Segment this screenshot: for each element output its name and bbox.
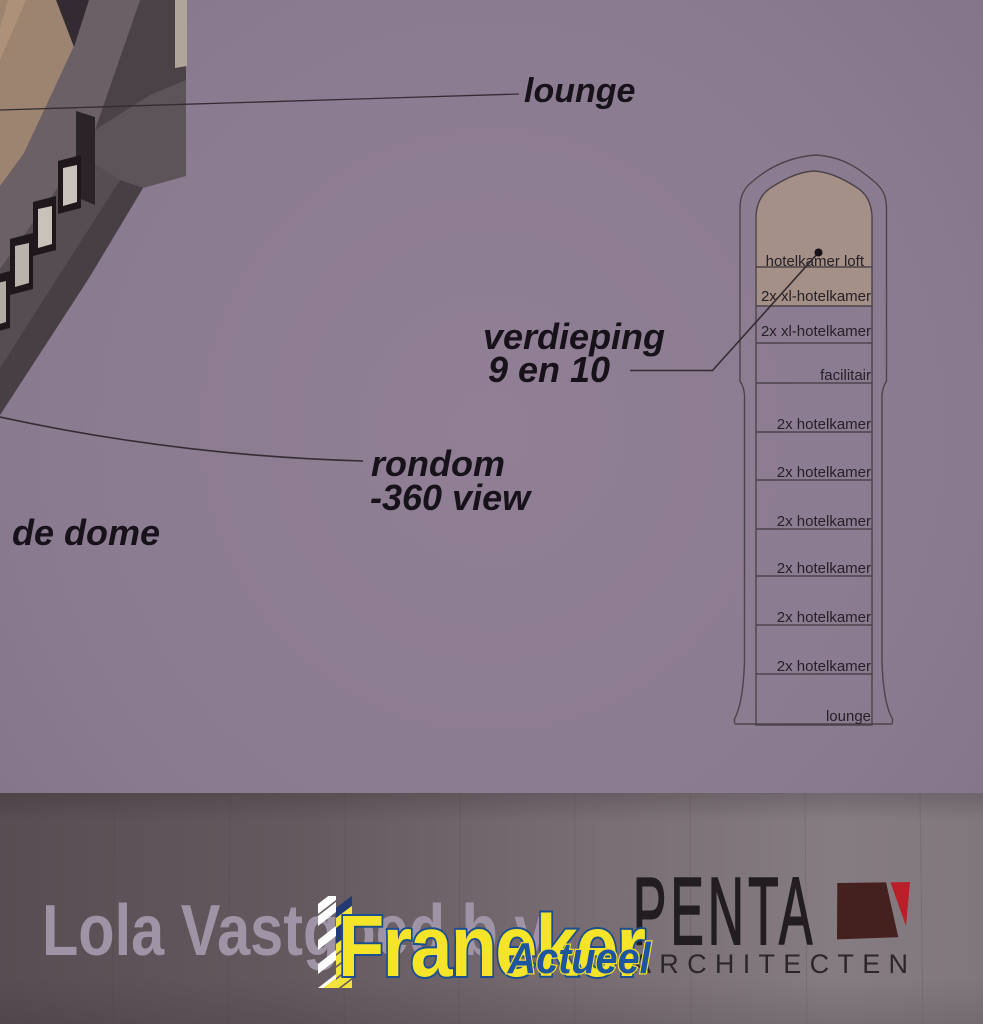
svg-text:Actueel: Actueel [507,933,652,982]
svg-text:2x hotelkamer: 2x hotelkamer [777,658,871,675]
svg-text:9 en 10: 9 en 10 [488,349,610,390]
svg-text:2x xl-hotelkamer: 2x xl-hotelkamer [761,288,871,305]
svg-text:2x hotelkamer: 2x hotelkamer [777,609,871,626]
svg-text:lounge: lounge [826,708,871,725]
svg-text:de dome: de dome [12,512,160,553]
svg-text:facilitair: facilitair [820,367,871,384]
svg-text:ARCHITECTEN: ARCHITECTEN [633,949,916,979]
svg-text:2x hotelkamer: 2x hotelkamer [777,513,871,530]
svg-text:2x hotelkamer: 2x hotelkamer [777,464,871,481]
svg-text:lounge: lounge [524,72,635,110]
svg-text:2x hotelkamer: 2x hotelkamer [777,560,871,577]
svg-text:2x xl-hotelkamer: 2x xl-hotelkamer [761,323,871,340]
svg-text:-360 view: -360 view [370,477,532,518]
svg-text:2x hotelkamer: 2x hotelkamer [777,416,871,433]
